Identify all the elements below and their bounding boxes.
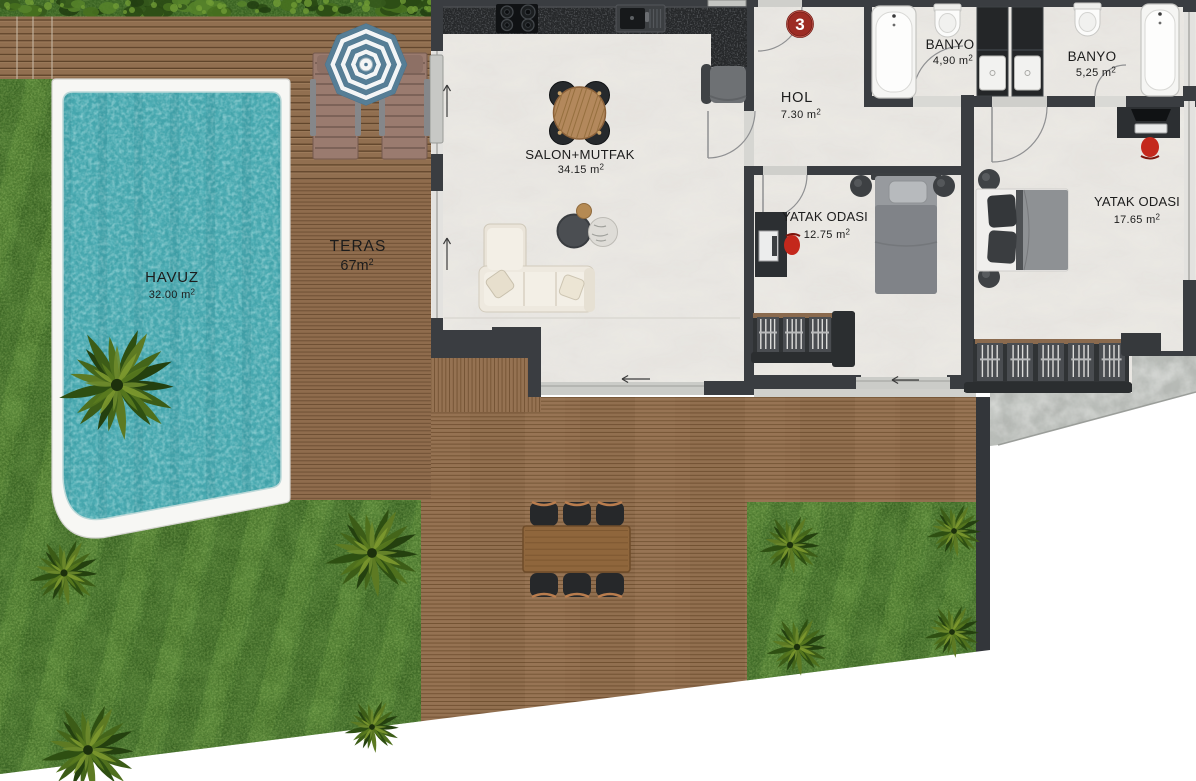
svg-text:4,90 m2: 4,90 m2 xyxy=(933,54,973,68)
svg-text:BANYO: BANYO xyxy=(926,37,975,52)
svg-text:BANYO: BANYO xyxy=(1068,49,1117,64)
svg-text:HOL: HOL xyxy=(781,90,813,106)
svg-text:5,25 m2: 5,25 m2 xyxy=(1076,66,1116,80)
svg-text:YATAK ODASI: YATAK ODASI xyxy=(1094,194,1180,209)
svg-text:YATAK ODASI: YATAK ODASI xyxy=(782,209,868,224)
svg-text:HAVUZ: HAVUZ xyxy=(145,269,199,286)
svg-text:3: 3 xyxy=(795,15,804,34)
svg-text:7.30 m2: 7.30 m2 xyxy=(781,108,821,122)
svg-text:32.00 m2: 32.00 m2 xyxy=(149,288,196,302)
svg-text:17.65 m2: 17.65 m2 xyxy=(1114,213,1161,227)
svg-text:SALON+MUTFAK: SALON+MUTFAK xyxy=(525,147,635,162)
svg-text:TERAS: TERAS xyxy=(330,238,387,255)
svg-text:12.75 m2: 12.75 m2 xyxy=(804,228,851,242)
svg-text:34.15 m2: 34.15 m2 xyxy=(558,163,605,177)
